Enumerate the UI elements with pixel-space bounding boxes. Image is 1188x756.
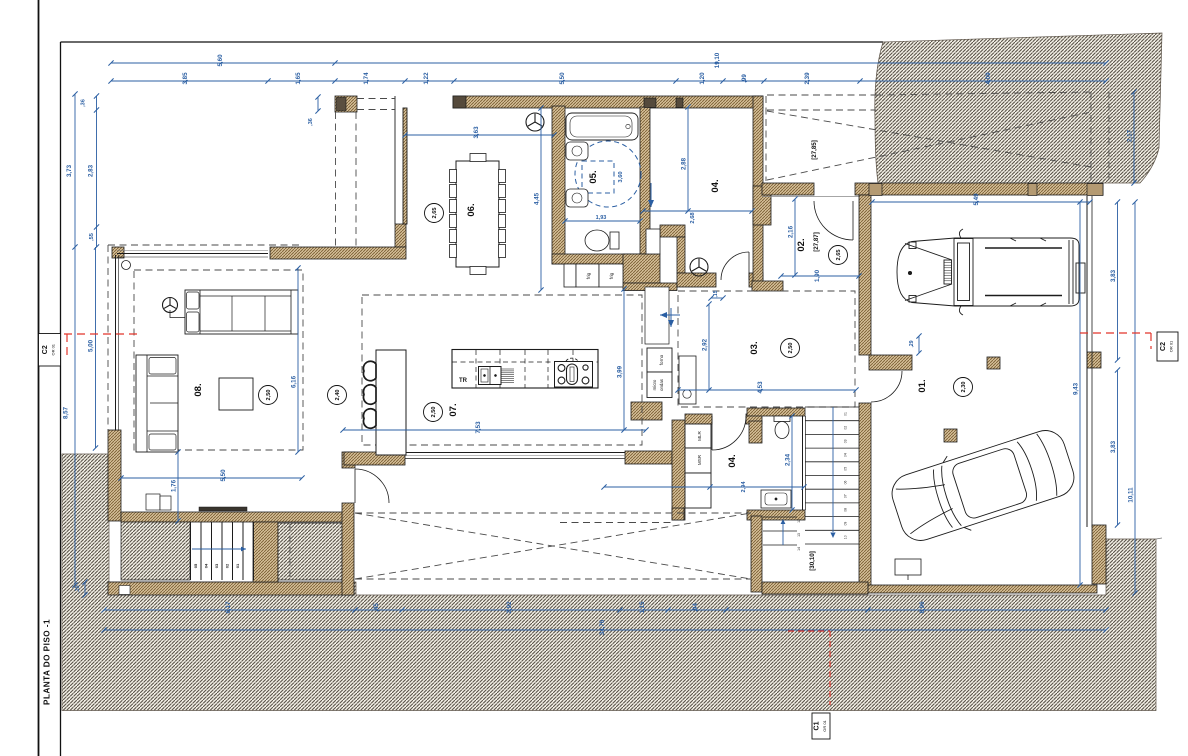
svg-text:frig: frig [609,272,614,279]
svg-text:1,93: 1,93 [596,215,607,221]
svg-text:7,53: 7,53 [475,421,482,434]
svg-text:34,76: 34,76 [599,619,606,635]
svg-text:2,30: 2,30 [961,382,967,393]
svg-text:2,34: 2,34 [785,453,792,466]
svg-text:,55: ,55 [89,233,95,241]
svg-text:03: 03 [844,439,848,443]
svg-text:2,50: 2,50 [788,343,794,354]
svg-text:04: 04 [204,563,209,568]
svg-text:3,99: 3,99 [617,365,624,378]
svg-text:07.: 07. [448,403,459,416]
svg-text:,99: ,99 [741,74,748,83]
svg-text:,36: ,36 [308,118,314,126]
svg-text:MSR: MSR [697,454,702,465]
svg-text:C1: C1 [814,721,821,730]
svg-text:2,40: 2,40 [335,390,341,401]
svg-text:3,60: 3,60 [618,171,624,182]
svg-text:,35: ,35 [75,585,81,592]
svg-text:2,16: 2,16 [788,225,795,238]
svg-text:07: 07 [844,494,848,498]
svg-text:1,90: 1,90 [814,269,821,282]
svg-text:2,39: 2,39 [804,72,811,85]
svg-text:OR 01: OR 01 [1169,340,1174,352]
svg-text:2,92: 2,92 [702,338,709,351]
svg-text:5,49: 5,49 [973,193,980,206]
svg-text:OR 01: OR 01 [51,343,56,355]
svg-text:2,88: 2,88 [681,157,688,170]
svg-text:5,50: 5,50 [559,72,566,85]
svg-text:frig: frig [586,272,591,279]
svg-text:8,57: 8,57 [63,406,70,419]
svg-text:02: 02 [225,563,230,568]
svg-text:06: 06 [844,481,848,485]
svg-text:3,63: 3,63 [473,126,480,139]
svg-text:TR: TR [459,378,468,384]
svg-text:[27,87]: [27,87] [813,232,820,252]
svg-text:04.: 04. [727,454,738,467]
svg-text:2,83: 2,83 [88,164,95,177]
svg-text:,15: ,15 [713,290,719,297]
svg-text:5,60: 5,60 [217,54,224,67]
svg-text:2,94: 2,94 [741,481,747,493]
svg-text:05: 05 [193,563,198,568]
svg-text:,36: ,36 [81,99,87,107]
svg-text:14: 14 [797,547,801,551]
svg-text:10,11: 10,11 [1128,487,1135,503]
svg-text:C2: C2 [1160,342,1167,351]
svg-text:02: 02 [844,426,848,430]
svg-text:2,65: 2,65 [836,250,842,261]
svg-text:4,09: 4,09 [985,72,992,85]
svg-text:04.: 04. [710,179,721,192]
svg-text:1,65: 1,65 [295,72,302,85]
svg-text:,29: ,29 [909,340,915,347]
svg-text:6,17: 6,17 [225,601,232,614]
svg-text:19,10: 19,10 [714,52,721,68]
svg-text:02.: 02. [796,238,807,251]
svg-text:2,50: 2,50 [431,407,437,418]
svg-text:04: 04 [844,453,848,457]
svg-text:08: 08 [844,508,848,512]
svg-text:05.: 05. [588,170,599,183]
svg-text:06.: 06. [466,203,477,216]
svg-text:3,83: 3,83 [1110,440,1117,453]
svg-text:3,85: 3,85 [182,72,189,85]
svg-text:03: 03 [214,563,219,568]
svg-text:OR 01: OR 01 [822,719,827,731]
svg-text:1,15: 1,15 [639,601,646,614]
svg-text:forno: forno [659,354,664,365]
svg-text:9,43: 9,43 [1073,382,1080,395]
svg-text:PLANTA DO PISO -1: PLANTA DO PISO -1 [43,619,52,705]
svg-text:ondas: ondas [659,378,664,391]
svg-text:08.: 08. [193,383,204,396]
svg-text:C2: C2 [42,345,49,354]
svg-text:1,22: 1,22 [423,72,430,85]
svg-text:2,50: 2,50 [266,390,272,401]
svg-text:05: 05 [844,467,848,471]
svg-text:2,92: 2,92 [506,601,513,614]
svg-text:2,65: 2,65 [432,208,438,219]
svg-text:3,83: 3,83 [1110,269,1117,282]
svg-text:12: 12 [797,519,801,523]
svg-text:10: 10 [844,535,848,539]
svg-text:3,73: 3,73 [66,164,73,177]
svg-text:1,74: 1,74 [363,72,370,85]
svg-text:4,53: 4,53 [757,381,764,394]
svg-text:01.: 01. [917,379,928,392]
svg-text:1,20: 1,20 [699,72,706,85]
svg-text:[30,10]: [30,10] [809,551,816,571]
svg-text:2,68: 2,68 [690,212,696,224]
svg-text:MLR: MLR [697,430,702,440]
svg-text:micro: micro [652,379,657,390]
svg-text:09: 09 [844,522,848,526]
svg-text:01: 01 [844,412,848,416]
svg-text:5,00: 5,00 [88,339,95,352]
svg-text:01: 01 [235,563,240,568]
svg-text:1,76: 1,76 [171,479,178,492]
svg-text:,45: ,45 [373,603,380,612]
svg-text:4,45: 4,45 [534,192,541,205]
svg-text:2,17: 2,17 [1127,129,1134,142]
svg-text:6,16: 6,16 [291,375,298,388]
svg-text:5,50: 5,50 [220,469,227,482]
svg-text:8,96: 8,96 [919,601,926,614]
svg-text:13: 13 [797,533,801,537]
svg-text:,94: ,94 [692,603,699,612]
svg-text:[27,85]: [27,85] [811,140,818,160]
svg-text:03.: 03. [749,341,760,354]
